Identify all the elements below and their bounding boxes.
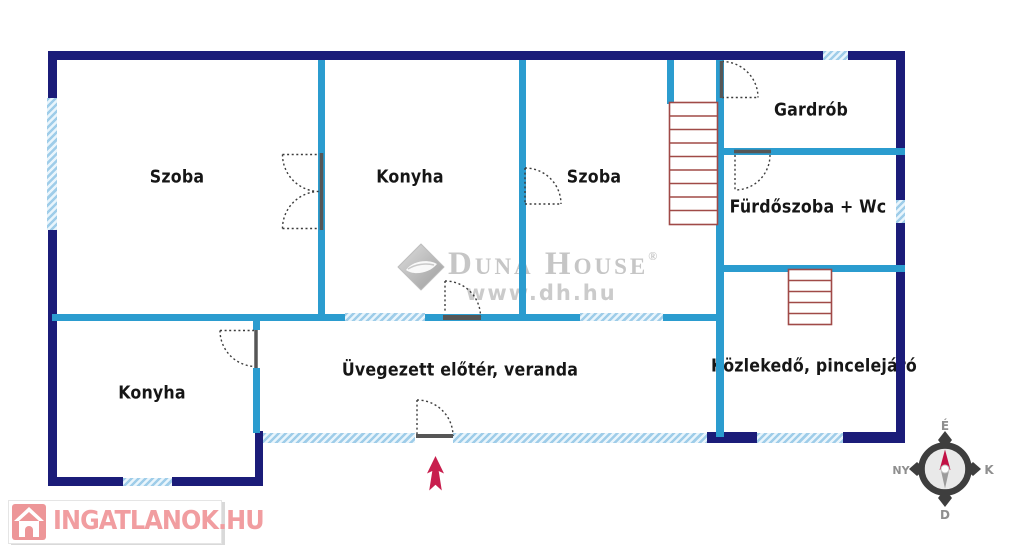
portal-name: INGATLANOK.HU	[53, 506, 264, 536]
ingatlanok-logo: INGATLANOK.HU	[8, 500, 222, 544]
house-icon	[12, 504, 46, 540]
floorplan-canvas: Duna House® www.dh.hu Szoba Konyha Szoba…	[0, 0, 1024, 545]
